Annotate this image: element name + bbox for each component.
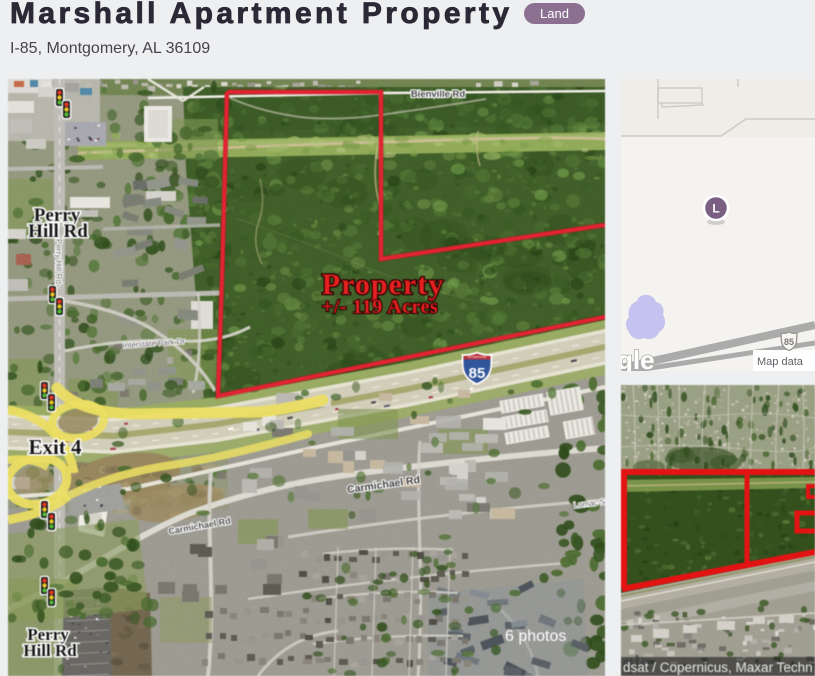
svg-text:Map data: Map data bbox=[757, 356, 804, 368]
svg-text:L: L bbox=[712, 202, 719, 216]
svg-text:gle: gle bbox=[621, 345, 655, 371]
svg-text:dsat / Copernicus, Maxar Techn: dsat / Copernicus, Maxar Techn bbox=[623, 660, 813, 675]
svg-text:85: 85 bbox=[784, 337, 794, 347]
